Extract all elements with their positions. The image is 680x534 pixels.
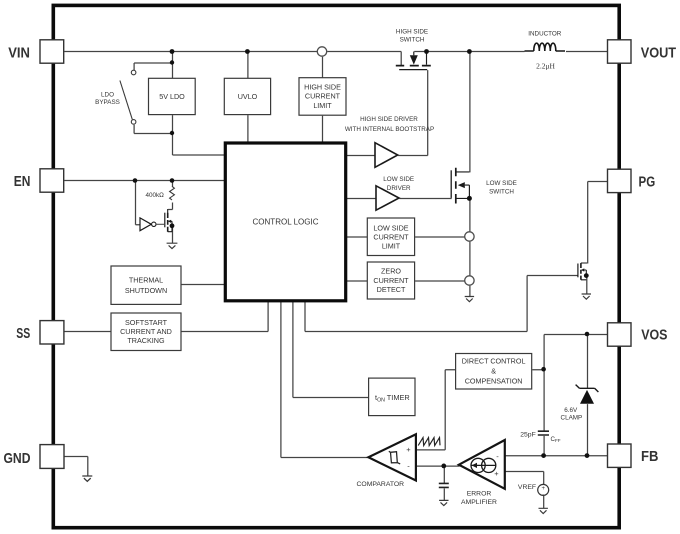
svg-text:SS: SS <box>16 324 30 341</box>
svg-text:PG: PG <box>639 173 656 190</box>
svg-text:+: + <box>406 445 411 454</box>
svg-text:VOS: VOS <box>641 326 667 342</box>
svg-text:INDUCTOR: INDUCTOR <box>528 31 562 38</box>
svg-text:UVLO: UVLO <box>238 92 258 101</box>
svg-text:2.2μH: 2.2μH <box>536 62 555 71</box>
svg-text:COMPARATOR: COMPARATOR <box>357 481 405 488</box>
svg-text:+: + <box>541 486 545 492</box>
svg-text:HIGH SIDE DRIVERWITH INTERNAL: HIGH SIDE DRIVERWITH INTERNAL BOOTSTRAP <box>345 116 434 133</box>
svg-text:LOW SIDEDRIVER: LOW SIDEDRIVER <box>383 176 414 192</box>
svg-text:THERMALSHUTDOWN: THERMALSHUTDOWN <box>125 276 167 295</box>
svg-text:25pF: 25pF <box>520 431 536 438</box>
svg-text:GND: GND <box>4 450 31 466</box>
svg-text:EN: EN <box>14 173 31 190</box>
svg-text:+: + <box>494 469 499 478</box>
svg-text:FB: FB <box>641 447 658 464</box>
svg-text:VREF: VREF <box>518 484 536 491</box>
svg-text:CFF: CFF <box>551 436 561 443</box>
svg-text:ERRORAMPLIFIER: ERRORAMPLIFIER <box>461 491 497 506</box>
svg-text:6.6VCLAMP: 6.6VCLAMP <box>561 407 583 422</box>
svg-text:-: - <box>542 493 544 499</box>
svg-text:LDOBYPASS: LDOBYPASS <box>95 91 120 106</box>
svg-text:CONTROL LOGIC: CONTROL LOGIC <box>253 218 319 227</box>
svg-text:SOFTSTARTCURRENT ANDTRACKING: SOFTSTARTCURRENT ANDTRACKING <box>120 318 172 345</box>
svg-text:VOUT: VOUT <box>641 43 677 60</box>
svg-text:400kΩ: 400kΩ <box>146 192 165 199</box>
svg-text:HIGH SIDESWITCH: HIGH SIDESWITCH <box>396 28 428 43</box>
svg-text:LOW SIDESWITCH: LOW SIDESWITCH <box>486 180 517 196</box>
svg-text:5V LDO: 5V LDO <box>159 92 185 101</box>
svg-text:VIN: VIN <box>8 44 30 61</box>
